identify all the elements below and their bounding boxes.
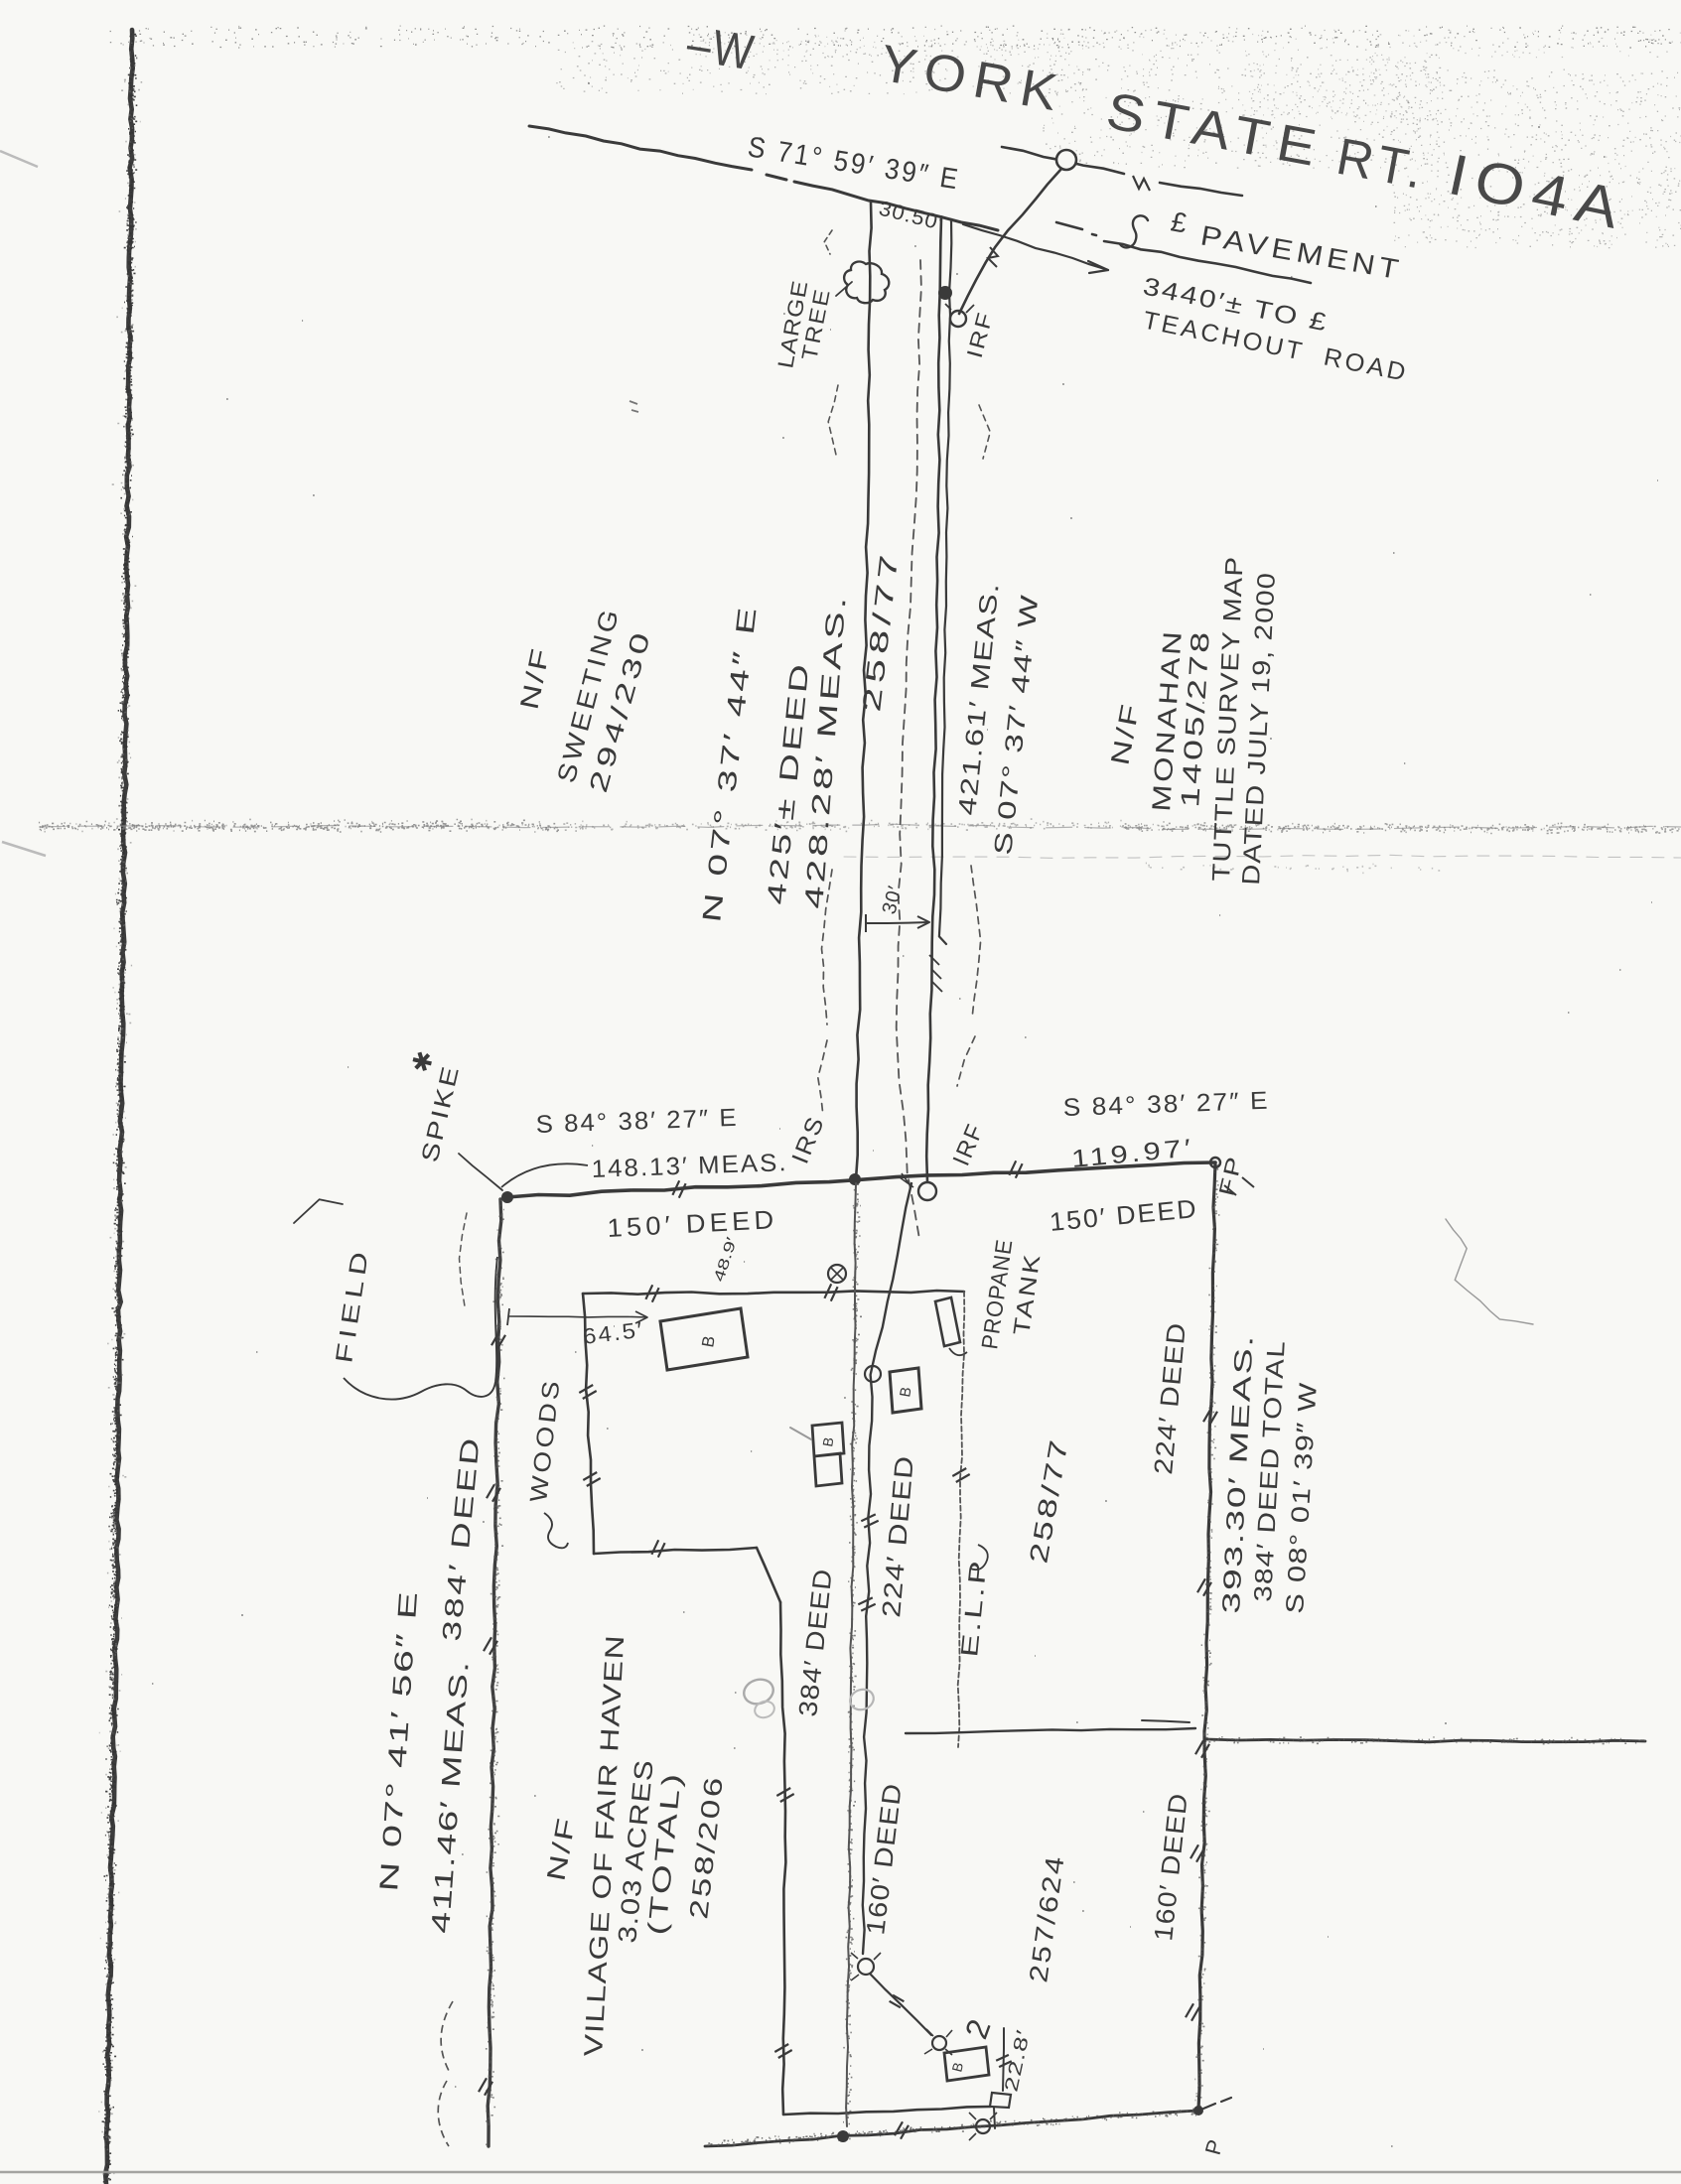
svg-text:–W: –W [683,16,759,81]
